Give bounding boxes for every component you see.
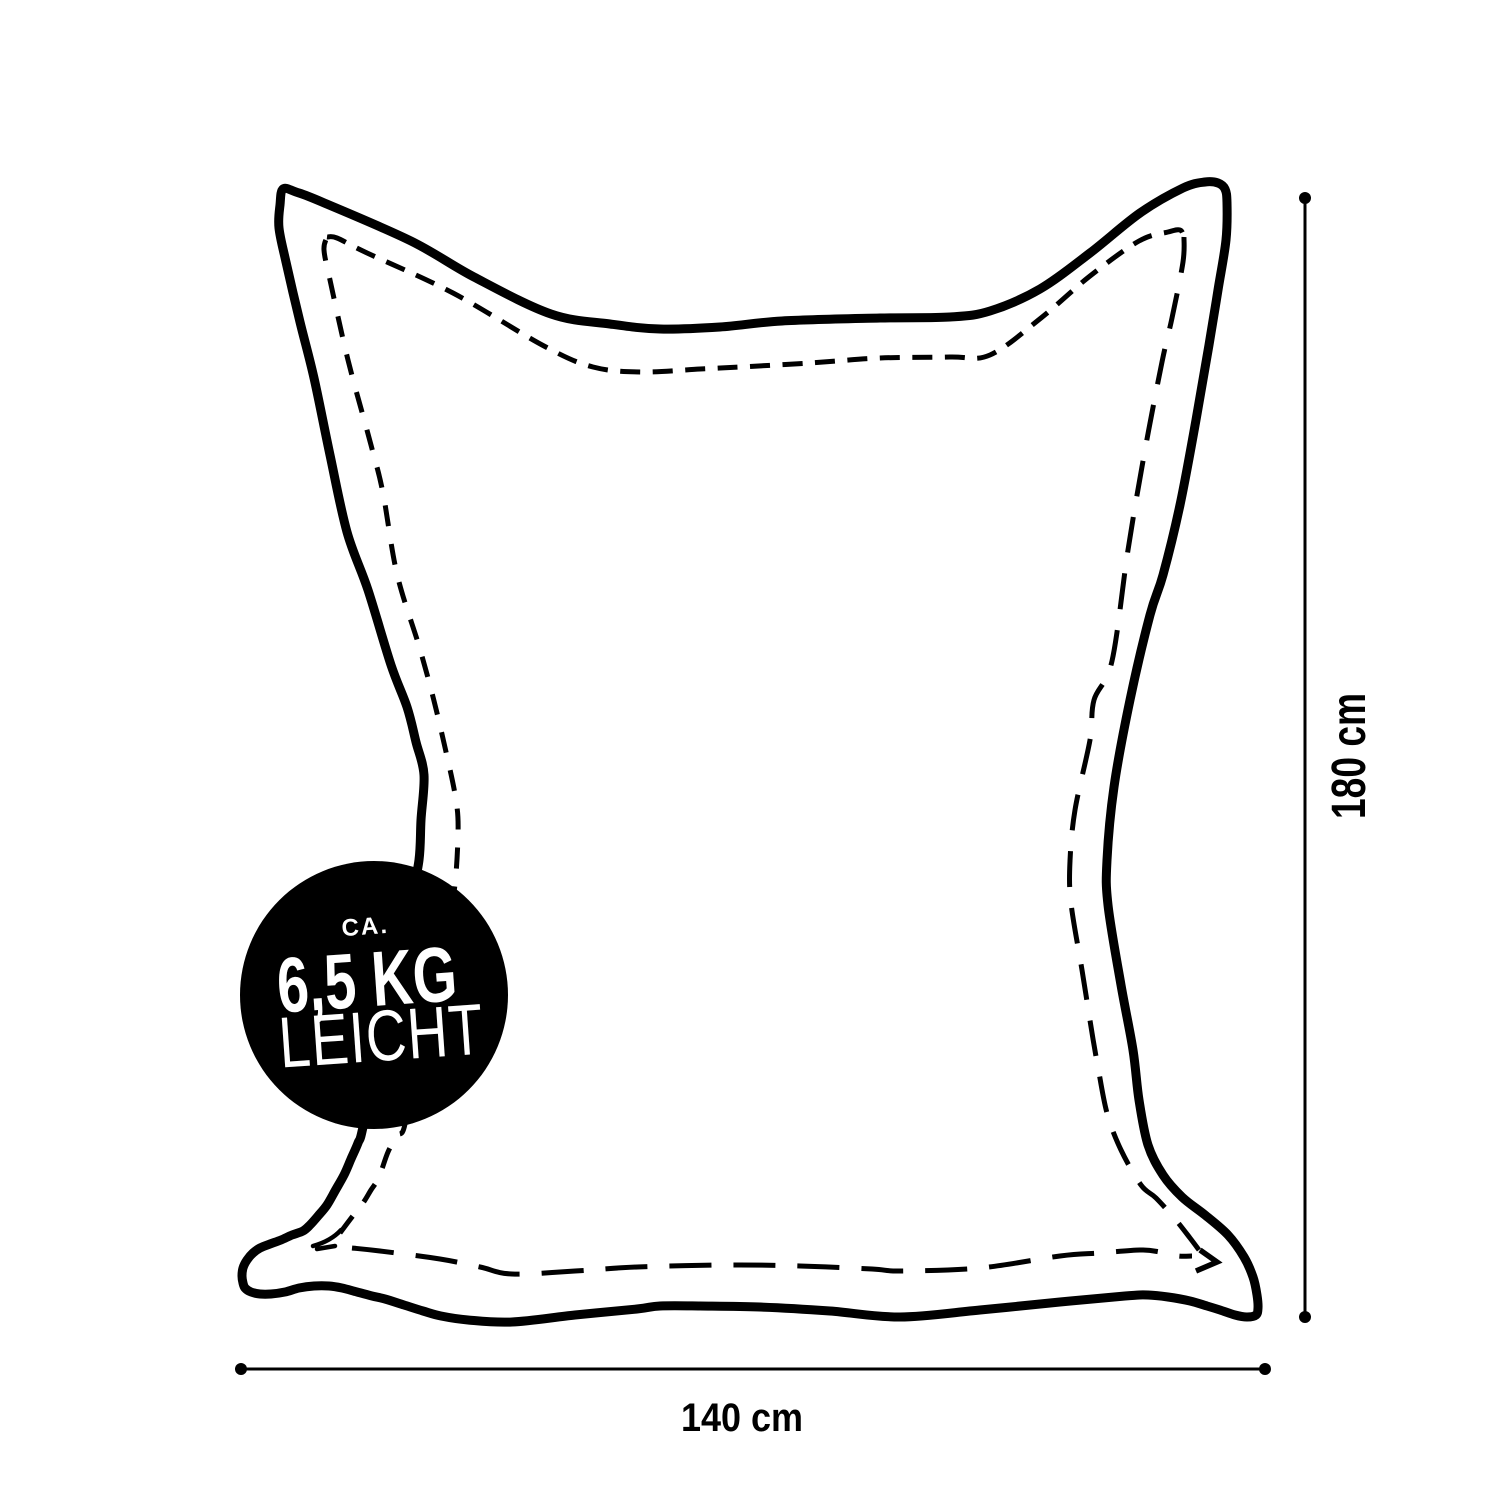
svg-text:140 cm: 140 cm bbox=[681, 1396, 803, 1440]
svg-text:180 cm: 180 cm bbox=[1323, 693, 1376, 819]
